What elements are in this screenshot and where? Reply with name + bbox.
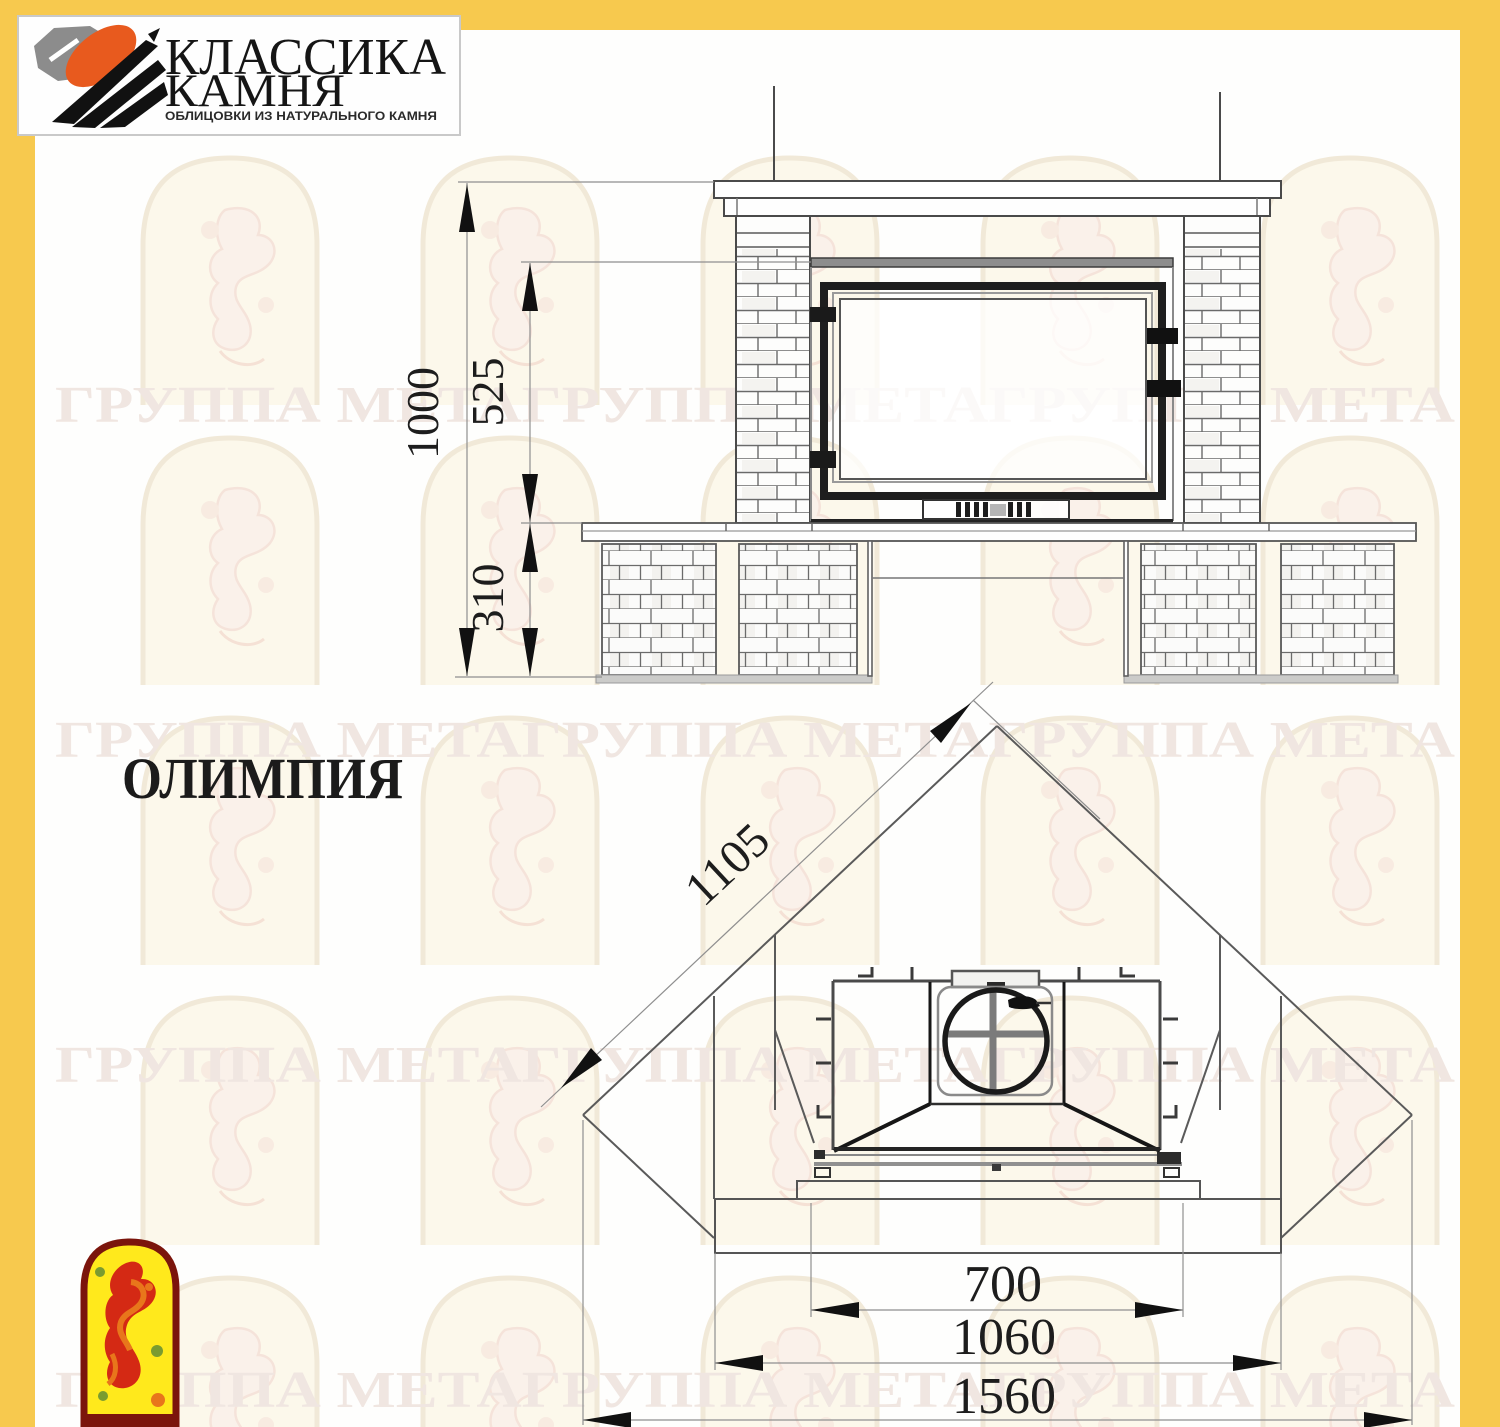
svg-text:ГРУППА МЕТАГРУППА МЕТАГРУППА М: ГРУППА МЕТАГРУППА МЕТАГРУППА МЕТА [55, 1037, 1456, 1094]
svg-text:1000: 1000 [397, 367, 448, 459]
svg-text:ОБЛИЦОВКИ ИЗ НАТУРАЛЬНОГО КАМН: ОБЛИЦОВКИ ИЗ НАТУРАЛЬНОГО КАМНЯ [165, 111, 437, 123]
svg-text:700: 700 [964, 1256, 1042, 1313]
svg-text:1560: 1560 [952, 1368, 1056, 1425]
svg-text:525: 525 [462, 358, 513, 427]
svg-text:КАМНЯ: КАМНЯ [165, 65, 345, 117]
svg-text:310: 310 [462, 564, 513, 633]
svg-text:ГРУППА МЕТАГРУППА МЕТАГРУППА М: ГРУППА МЕТАГРУППА МЕТАГРУППА МЕТА [55, 1362, 1456, 1419]
svg-text:ОЛИМПИЯ: ОЛИМПИЯ [122, 746, 403, 811]
svg-text:1060: 1060 [952, 1309, 1056, 1366]
